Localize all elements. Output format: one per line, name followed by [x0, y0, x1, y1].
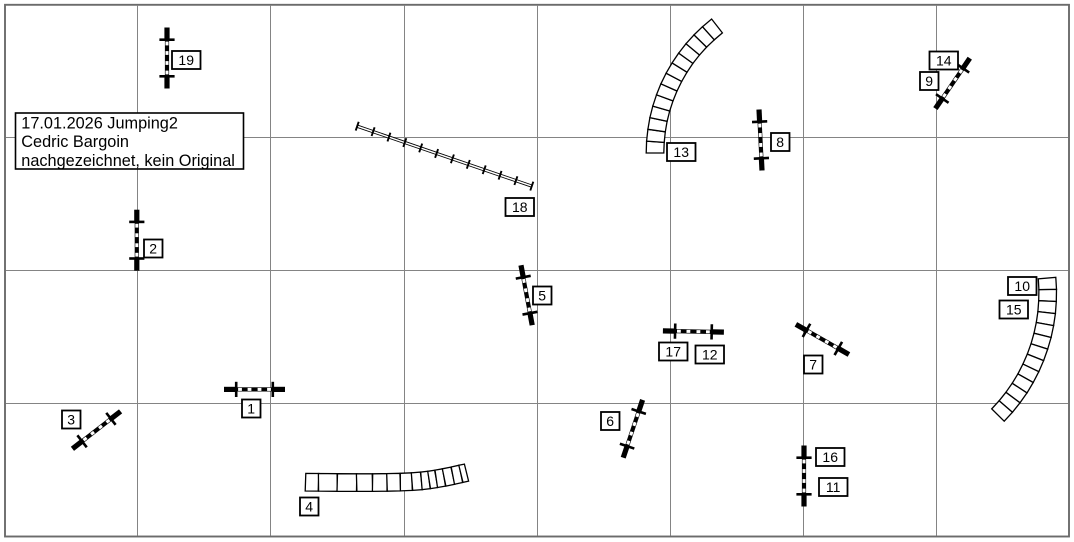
svg-text:13: 13 — [673, 144, 689, 160]
svg-text:18: 18 — [512, 199, 528, 215]
svg-text:15: 15 — [1006, 302, 1022, 318]
svg-text:5: 5 — [538, 288, 546, 304]
svg-text:19: 19 — [178, 52, 194, 68]
svg-text:9: 9 — [925, 73, 933, 89]
svg-text:10: 10 — [1014, 278, 1030, 294]
svg-text:2: 2 — [149, 241, 157, 257]
svg-text:11: 11 — [826, 479, 841, 495]
svg-text:8: 8 — [776, 134, 784, 150]
svg-text:17: 17 — [665, 344, 681, 360]
svg-text:4: 4 — [305, 499, 313, 515]
svg-text:1: 1 — [247, 401, 255, 417]
svg-text:12: 12 — [702, 347, 718, 363]
svg-text:14: 14 — [936, 53, 952, 69]
svg-text:6: 6 — [606, 413, 614, 429]
svg-text:16: 16 — [822, 449, 838, 465]
svg-text:3: 3 — [67, 412, 75, 428]
svg-text:7: 7 — [809, 357, 817, 373]
svg-text:17.01.2026 Jumping2: 17.01.2026 Jumping2 — [21, 115, 178, 133]
svg-text:Cedric Bargoin: Cedric Bargoin — [21, 133, 129, 151]
svg-text:nachgezeichnet, kein Original: nachgezeichnet, kein Original — [21, 152, 235, 170]
